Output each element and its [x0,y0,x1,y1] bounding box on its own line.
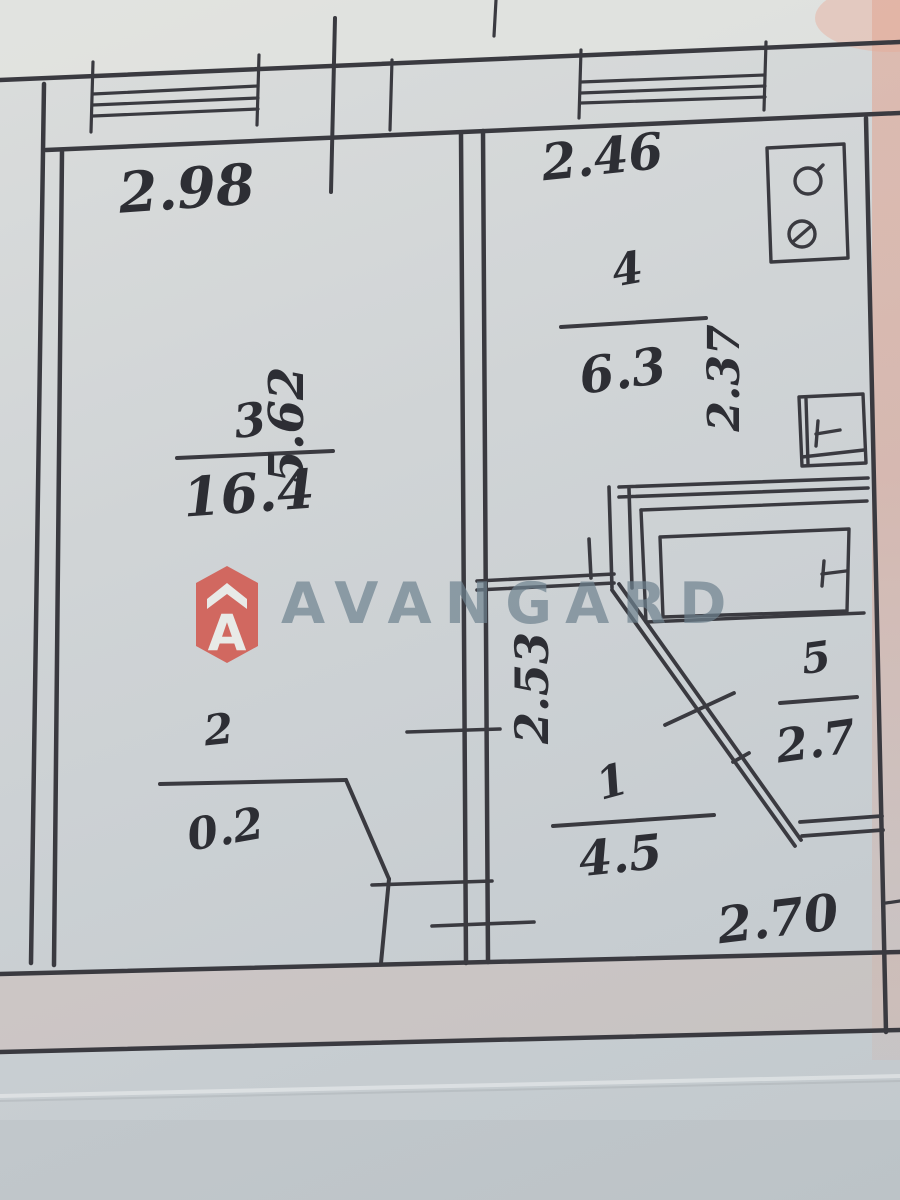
dim-bottom-right: 2.70 [713,882,842,956]
window-left-glass-line [93,98,258,105]
stove-burner-mark [818,165,823,170]
left-wall-outer [31,84,44,963]
window-left-end-tick [257,55,259,125]
window-right-end-tick [579,50,581,118]
room2-area: 0.2 [183,798,267,862]
dim-top-right: 2.46 [538,121,666,193]
sink-inner-line [806,399,808,464]
right-wall-tick [886,901,900,903]
room1-fraction-bar [553,815,714,826]
central-wall-right-line [483,131,488,962]
lintel-tick [589,539,591,578]
hall-lintel-line [477,583,614,590]
floorplan-photo: 2.98 2.46 5.62 2.37 2.53 2.70 3 16.4 4 6… [0,0,900,1200]
bathtub-outer [641,501,867,510]
room4-number: 4 [608,242,647,298]
bathtub-tap-cross [822,561,824,586]
room4-fraction-bar [561,318,706,327]
room4-area: 6.3 [575,335,669,406]
bathtub-icon [641,501,867,622]
kitchen-bath-wall-line [619,488,868,497]
room5-number: 5 [798,631,834,684]
sink-inner-line [802,450,864,457]
dim-kitchen-right: 2.37 [699,324,750,433]
central-wall-left-line [461,133,466,963]
top-wall-inner [46,113,900,150]
closet-chamfer-line [346,780,389,879]
room1-number: 1 [591,753,634,810]
dimension-tick-lower2 [432,922,534,926]
left-wall-inner [54,152,62,965]
bath-partition-line [629,489,632,588]
room5-area: 2.7 [771,709,859,774]
dim-top-left: 2.98 [115,151,257,226]
sink-icon [799,394,866,466]
window-right-glass-line [581,97,765,103]
bathtub-outer [641,510,646,622]
kitchen-bath-wall-line [619,478,868,487]
room2-number: 2 [200,704,235,756]
bottom-wall-tint [0,954,900,1050]
window-right-glass-line [581,86,765,93]
window-left-glass-line [93,86,258,94]
stove-burner-mark [794,227,810,241]
window-right-glass-line [581,75,765,82]
door-leaf-line [612,590,795,846]
bath-bottom-wall-line [800,816,882,822]
closet-top-line [160,780,346,784]
sink-tap-stem [816,430,840,434]
top-reference-tick [494,0,496,36]
bathtub-tap-stem [822,571,846,574]
paper-crease [0,1076,900,1096]
fixtures [641,144,867,622]
hall-lintel-line [477,574,614,581]
stove-burner-icon [795,168,821,194]
room3-area: 16.4 [181,457,317,530]
window-left-end-tick [91,62,93,132]
bath-bottom-wall-line [802,830,883,836]
window-left-glass-line [93,109,258,116]
room1-area: 4.5 [576,824,665,888]
room5-fraction-bar [780,697,857,703]
closet-outline [160,780,389,963]
closet-side-line [381,879,389,963]
dim-hall-center: 2.53 [505,632,559,745]
sink-tap-cross [816,421,818,446]
wall-tick [390,60,392,130]
floorplan-drawing: 2.98 2.46 5.62 2.37 2.53 2.70 3 16.4 4 6… [0,0,900,1200]
stove-icon [767,144,848,262]
paper-bottom-shade [0,1120,900,1200]
